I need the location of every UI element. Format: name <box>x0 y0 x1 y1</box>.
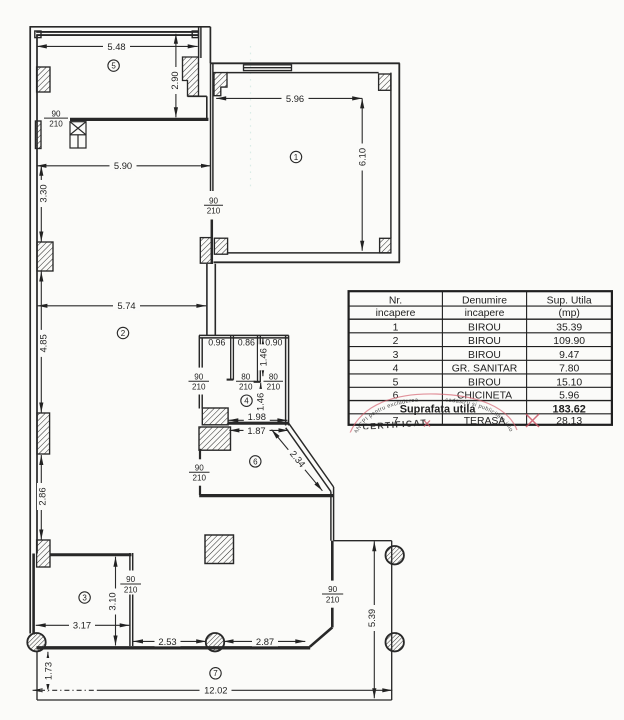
svg-text:3: 3 <box>393 350 399 361</box>
svg-text:183.62: 183.62 <box>553 403 586 415</box>
svg-text:BIROU: BIROU <box>468 336 501 347</box>
svg-text:incapere: incapere <box>376 308 416 319</box>
svg-text:Denumire: Denumire <box>462 295 507 306</box>
svg-text:Nr.: Nr. <box>389 295 402 306</box>
svg-text:210: 210 <box>192 383 206 392</box>
svg-text:90: 90 <box>195 463 205 472</box>
svg-text:210: 210 <box>124 585 138 594</box>
svg-text:90: 90 <box>126 575 136 584</box>
svg-text:4: 4 <box>393 364 399 375</box>
svg-text:12.02: 12.02 <box>204 685 227 696</box>
svg-text:90: 90 <box>194 372 204 381</box>
svg-text:incapere: incapere <box>465 308 505 319</box>
svg-text:6: 6 <box>253 457 258 466</box>
svg-text:5.74: 5.74 <box>117 300 135 311</box>
svg-text:2: 2 <box>393 336 399 347</box>
svg-text:2.53: 2.53 <box>158 636 176 647</box>
svg-text:210: 210 <box>267 383 281 392</box>
svg-text:5.90: 5.90 <box>114 160 132 171</box>
svg-text:3.10: 3.10 <box>106 592 117 610</box>
svg-text:1.73: 1.73 <box>42 662 53 680</box>
svg-text:3.17: 3.17 <box>73 620 91 631</box>
svg-text:80: 80 <box>241 372 251 381</box>
svg-text:2: 2 <box>121 329 126 338</box>
svg-text:BIROU: BIROU <box>468 322 501 333</box>
svg-text:90: 90 <box>209 196 219 205</box>
svg-text:7.80: 7.80 <box>559 364 579 375</box>
svg-text:6: 6 <box>393 391 399 402</box>
svg-text:5.48: 5.48 <box>107 41 125 52</box>
svg-text:1.46: 1.46 <box>254 393 265 411</box>
svg-text:BIROU: BIROU <box>468 350 501 361</box>
svg-text:210: 210 <box>207 207 221 216</box>
svg-text:210: 210 <box>192 474 206 483</box>
svg-text:210: 210 <box>49 120 63 129</box>
svg-text:90: 90 <box>51 109 61 118</box>
svg-text:GR. SANITAR: GR. SANITAR <box>452 364 518 375</box>
svg-text:1.46: 1.46 <box>257 348 268 366</box>
svg-text:2.87: 2.87 <box>256 636 274 647</box>
svg-text:2.86: 2.86 <box>36 487 47 505</box>
svg-text:5.96: 5.96 <box>286 93 304 104</box>
svg-text:7: 7 <box>213 669 218 678</box>
svg-text:90: 90 <box>328 585 338 594</box>
svg-text:5: 5 <box>111 62 116 71</box>
svg-text:3: 3 <box>82 593 87 602</box>
svg-text:109.90: 109.90 <box>553 336 585 347</box>
svg-text:1: 1 <box>294 153 299 162</box>
svg-text:1: 1 <box>393 322 399 333</box>
svg-text:2.90: 2.90 <box>169 71 180 89</box>
svg-text:5.96: 5.96 <box>559 391 579 402</box>
svg-text:BIROU: BIROU <box>468 377 501 388</box>
svg-text:28.13: 28.13 <box>556 416 582 427</box>
svg-text:(mp): (mp) <box>559 308 580 319</box>
svg-text:0.86: 0.86 <box>238 337 255 347</box>
svg-text:3.30: 3.30 <box>37 184 48 202</box>
svg-text:35.39: 35.39 <box>556 322 582 333</box>
svg-text:210: 210 <box>239 383 253 392</box>
svg-text:0.90: 0.90 <box>265 337 282 347</box>
svg-text:5: 5 <box>393 377 399 388</box>
svg-text:1.98: 1.98 <box>248 411 266 422</box>
svg-text:4.85: 4.85 <box>37 334 48 352</box>
svg-text:15.10: 15.10 <box>556 377 582 388</box>
svg-text:80: 80 <box>269 372 279 381</box>
svg-text:210: 210 <box>326 595 340 604</box>
svg-text:9.47: 9.47 <box>559 350 579 361</box>
svg-text:1.87: 1.87 <box>247 425 265 436</box>
svg-text:4: 4 <box>244 397 249 406</box>
svg-text:6.10: 6.10 <box>357 148 368 166</box>
svg-text:Sup. Utila: Sup. Utila <box>547 295 592 306</box>
svg-text:5.39: 5.39 <box>366 609 377 627</box>
svg-text:0.96: 0.96 <box>208 337 225 347</box>
